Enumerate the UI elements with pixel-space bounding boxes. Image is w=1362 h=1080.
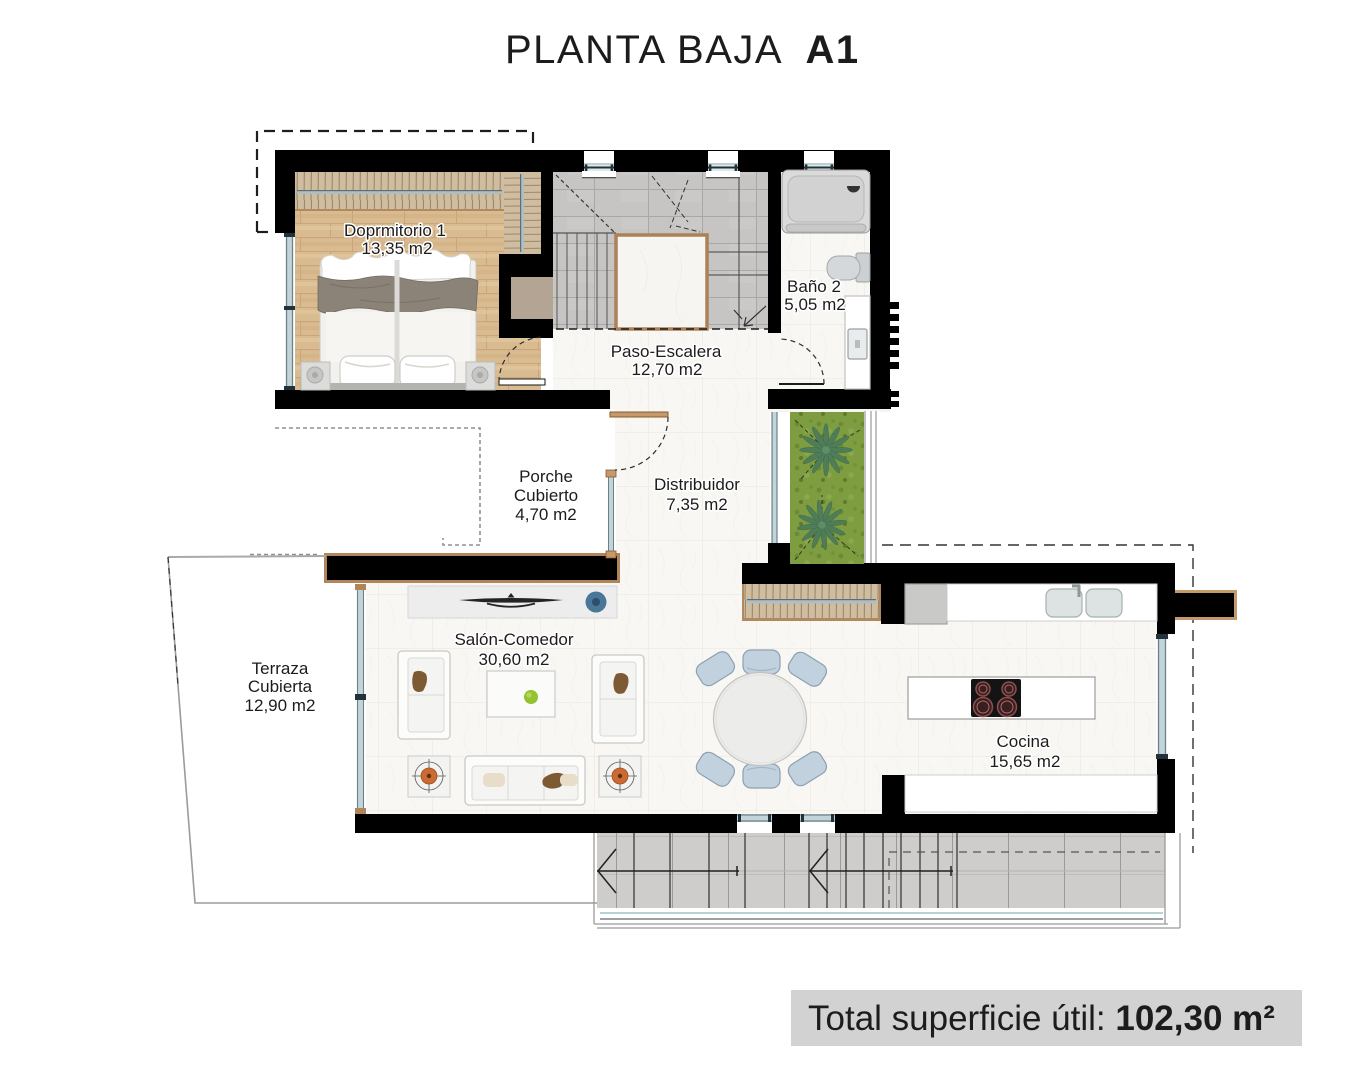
svg-text:Doprmitorio 1: Doprmitorio 1	[344, 221, 446, 240]
svg-text:7,35 m2: 7,35 m2	[666, 495, 727, 514]
svg-text:30,60 m2: 30,60 m2	[479, 650, 550, 669]
svg-text:4,70 m2: 4,70 m2	[515, 505, 576, 524]
svg-text:Cocina: Cocina	[997, 732, 1050, 751]
svg-text:Cubierto: Cubierto	[514, 486, 578, 505]
svg-text:13,35 m2: 13,35 m2	[362, 239, 433, 258]
svg-text:5,05 m2: 5,05 m2	[784, 295, 845, 314]
svg-text:PLANTA BAJA A1: PLANTA BAJA A1	[505, 28, 860, 72]
svg-text:Paso-Escalera: Paso-Escalera	[611, 342, 722, 361]
svg-text:Total superficie útil: 102,30: Total superficie útil: 102,30 m²	[808, 999, 1275, 1038]
svg-text:Cubierta: Cubierta	[248, 677, 313, 696]
svg-text:Terraza: Terraza	[252, 659, 309, 678]
svg-text:Salón-Comedor: Salón-Comedor	[454, 630, 573, 649]
svg-text:Baño 2: Baño 2	[787, 277, 841, 296]
svg-text:12,70 m2: 12,70 m2	[632, 360, 703, 379]
svg-text:15,65 m2: 15,65 m2	[990, 752, 1061, 771]
svg-text:12,90 m2: 12,90 m2	[245, 696, 316, 715]
svg-text:Distribuidor: Distribuidor	[654, 475, 740, 494]
svg-text:Porche: Porche	[519, 467, 573, 486]
